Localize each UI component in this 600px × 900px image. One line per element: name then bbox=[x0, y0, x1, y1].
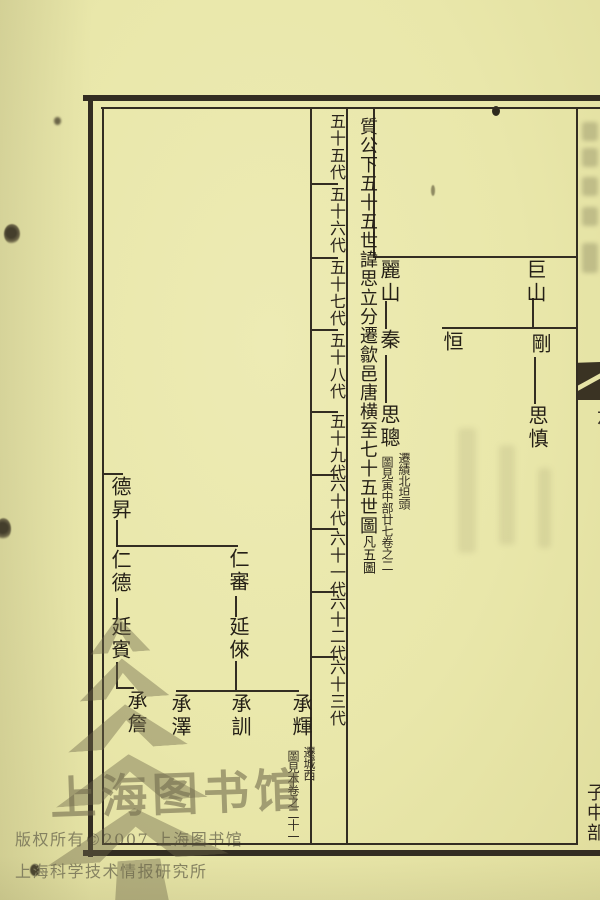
generation-row-tick bbox=[311, 329, 338, 331]
paper-fiber bbox=[431, 185, 435, 196]
library-name-watermark: 上海图书馆 bbox=[49, 753, 321, 828]
person-name: 思聰 bbox=[373, 404, 399, 450]
person-name: 仁德 bbox=[105, 549, 130, 595]
fishtail-ornament-icon bbox=[578, 362, 600, 400]
ink-bleedthrough bbox=[499, 445, 515, 545]
ink-speck bbox=[54, 117, 61, 125]
frame-border bbox=[101, 107, 600, 109]
sibling-connector-line bbox=[373, 256, 578, 258]
library-pagoda-logo-icon bbox=[30, 610, 235, 900]
generation-label: 五十九代 bbox=[314, 413, 344, 481]
ink-bleedthrough bbox=[582, 177, 598, 196]
ink-bleedthrough bbox=[582, 243, 598, 273]
generation-label: 五十六代 bbox=[314, 186, 344, 254]
sibling-connector-line bbox=[116, 545, 238, 547]
descent-line bbox=[534, 357, 536, 404]
descent-line bbox=[385, 355, 387, 403]
chart-title-note: 凡五圖 bbox=[360, 535, 375, 574]
descent-line bbox=[116, 520, 118, 546]
sibling-connector-line bbox=[442, 327, 578, 329]
generation-column-rule bbox=[346, 108, 348, 844]
gutter-volume-label: 旌德邑新建 bbox=[585, 280, 600, 360]
person-name: 延倈 bbox=[223, 616, 248, 662]
descent-line bbox=[235, 661, 237, 691]
binding-hole bbox=[4, 224, 20, 244]
person-name: 仁審 bbox=[223, 548, 248, 594]
frame-border bbox=[576, 107, 578, 845]
generation-label: 五十五代 bbox=[314, 113, 344, 181]
continuation-tick bbox=[103, 473, 123, 475]
generation-label: 六十三代 bbox=[314, 659, 344, 727]
gutter-partial-character: 六 bbox=[586, 406, 600, 425]
frame-border bbox=[83, 95, 600, 101]
person-name: 巨山 bbox=[521, 259, 545, 305]
descent-line bbox=[385, 301, 387, 329]
person-name: 德昇 bbox=[105, 476, 130, 522]
generation-label: 五十八代 bbox=[314, 332, 344, 400]
ink-bleedthrough bbox=[582, 207, 598, 226]
person-name: 思慎 bbox=[521, 405, 547, 451]
migration-note: 遷績北坦頭 bbox=[394, 452, 410, 510]
ink-bleedthrough bbox=[538, 468, 551, 548]
person-name: 承輝 bbox=[286, 693, 311, 739]
generation-row-tick bbox=[311, 183, 338, 185]
ink-bleedthrough bbox=[458, 428, 476, 553]
ink-bleedthrough bbox=[582, 148, 598, 167]
chart-title-text: 質公下五十五世諱思立分遷歙邑唐横至七十五世圖 bbox=[357, 117, 378, 535]
generation-label: 六十一代 bbox=[314, 530, 344, 598]
person-name: 承訓 bbox=[225, 693, 250, 739]
generation-label: 五十七代 bbox=[314, 259, 344, 327]
person-name: 麗山 bbox=[375, 259, 399, 305]
descent-line bbox=[116, 598, 118, 618]
person-name: 恒 bbox=[440, 331, 462, 354]
scanned-genealogy-page: 五十五代 五十六代 五十七代 五十八代 五十九代 六十代 六十一代 六十二代 六… bbox=[0, 0, 600, 900]
person-name: 秦 bbox=[375, 329, 399, 352]
gutter-section-label: 子中部 bbox=[577, 783, 600, 843]
generation-label: 六十二代 bbox=[314, 594, 344, 662]
cross-reference-note: 圖見寅中部廿七卷之二 bbox=[377, 456, 393, 571]
generation-label: 六十代 bbox=[314, 476, 344, 527]
descent-line bbox=[235, 596, 237, 617]
chart-title-column: 質公下五十五世諱思立分遷歙邑唐横至七十五世圖凡五圖 bbox=[349, 117, 376, 574]
ink-bleedthrough bbox=[582, 122, 598, 141]
person-name: 剛 bbox=[526, 333, 550, 356]
